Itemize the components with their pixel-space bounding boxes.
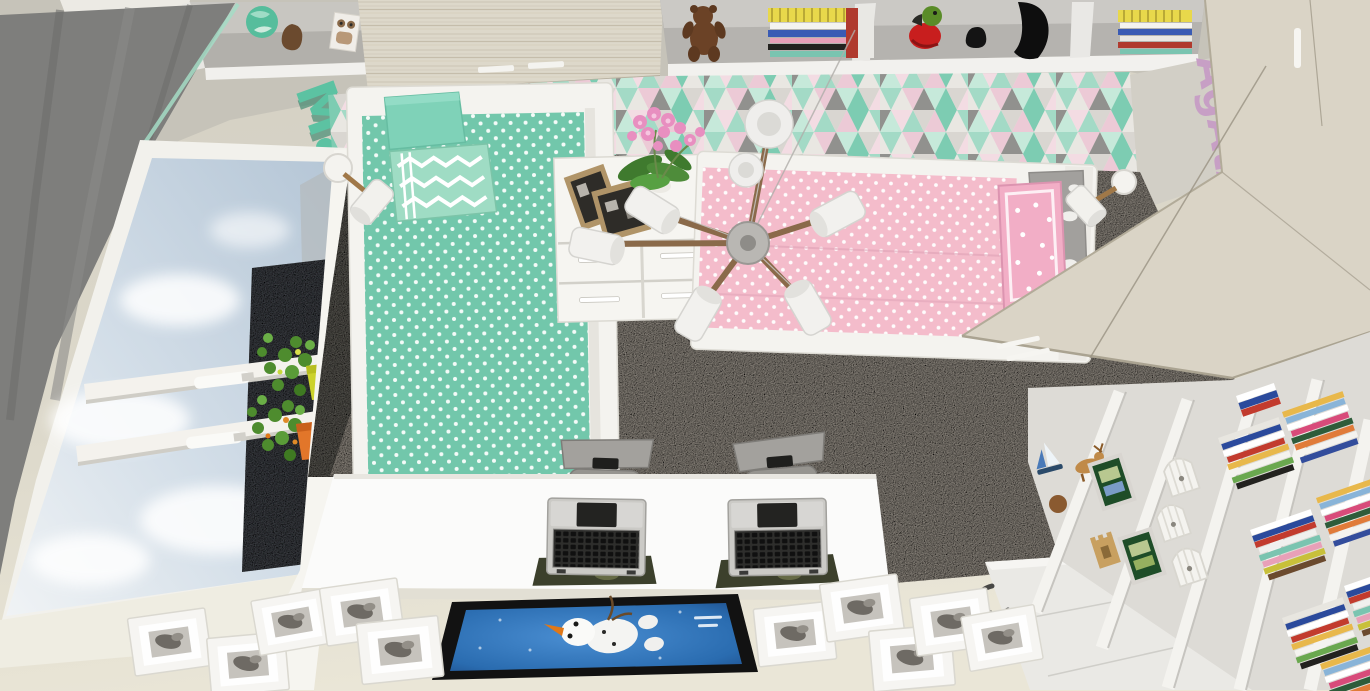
room-render: Maja Maja <box>0 0 1370 691</box>
owl-card <box>330 12 361 51</box>
laptop-right <box>714 498 840 588</box>
display-shelf <box>660 0 1205 78</box>
globe <box>246 6 278 38</box>
mint-pillow-solid <box>385 92 466 149</box>
olaf-poster <box>432 594 758 680</box>
mint-pillow-chevron <box>389 144 496 222</box>
wooden-ball <box>1049 495 1067 513</box>
book-stack-shelf-2 <box>1118 10 1192 54</box>
laptop-left <box>532 498 658 588</box>
